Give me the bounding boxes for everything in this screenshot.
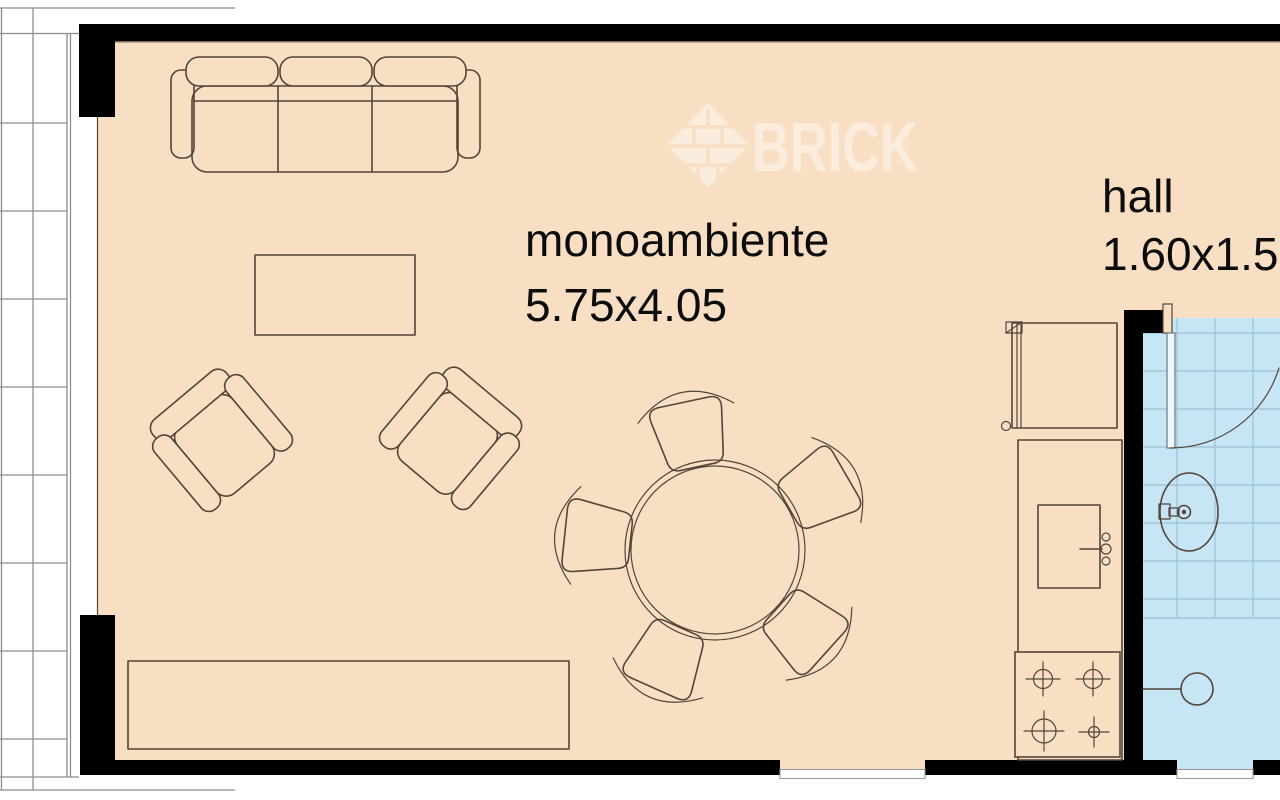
watermark: BRICK	[665, 103, 918, 187]
bottom-wall-right	[1253, 760, 1280, 775]
main-room-dimensions: 5.75x4.05	[525, 279, 727, 331]
bathroom-floor	[1143, 318, 1280, 775]
bathroom-wall	[1124, 310, 1143, 775]
door-jamb	[1163, 304, 1172, 333]
stove	[1015, 652, 1120, 757]
bottom-wall-left	[80, 760, 780, 775]
top-wall	[79, 24, 1280, 41]
bathroom	[1143, 318, 1280, 775]
floor-plan: BRICK monoambiente 5.75x4.05 hall 1.60x1…	[0, 0, 1280, 800]
main-room-name: monoambiente	[525, 214, 829, 266]
bottom-window-bathroom	[1177, 760, 1253, 779]
floor-plan-drawing: BRICK monoambiente 5.75x4.05 hall 1.60x1…	[0, 0, 1280, 800]
hall-dimensions: 1.60x1.5	[1102, 228, 1278, 280]
top-left-wall-block	[79, 24, 115, 117]
bottom-left-wall-block	[80, 615, 115, 760]
hall-name: hall	[1102, 170, 1174, 222]
watermark-brand-text: BRICK	[752, 108, 918, 186]
bottom-window-main	[780, 760, 925, 779]
door-leaf	[1167, 333, 1175, 448]
bathroom-wall-corner	[1124, 310, 1165, 333]
